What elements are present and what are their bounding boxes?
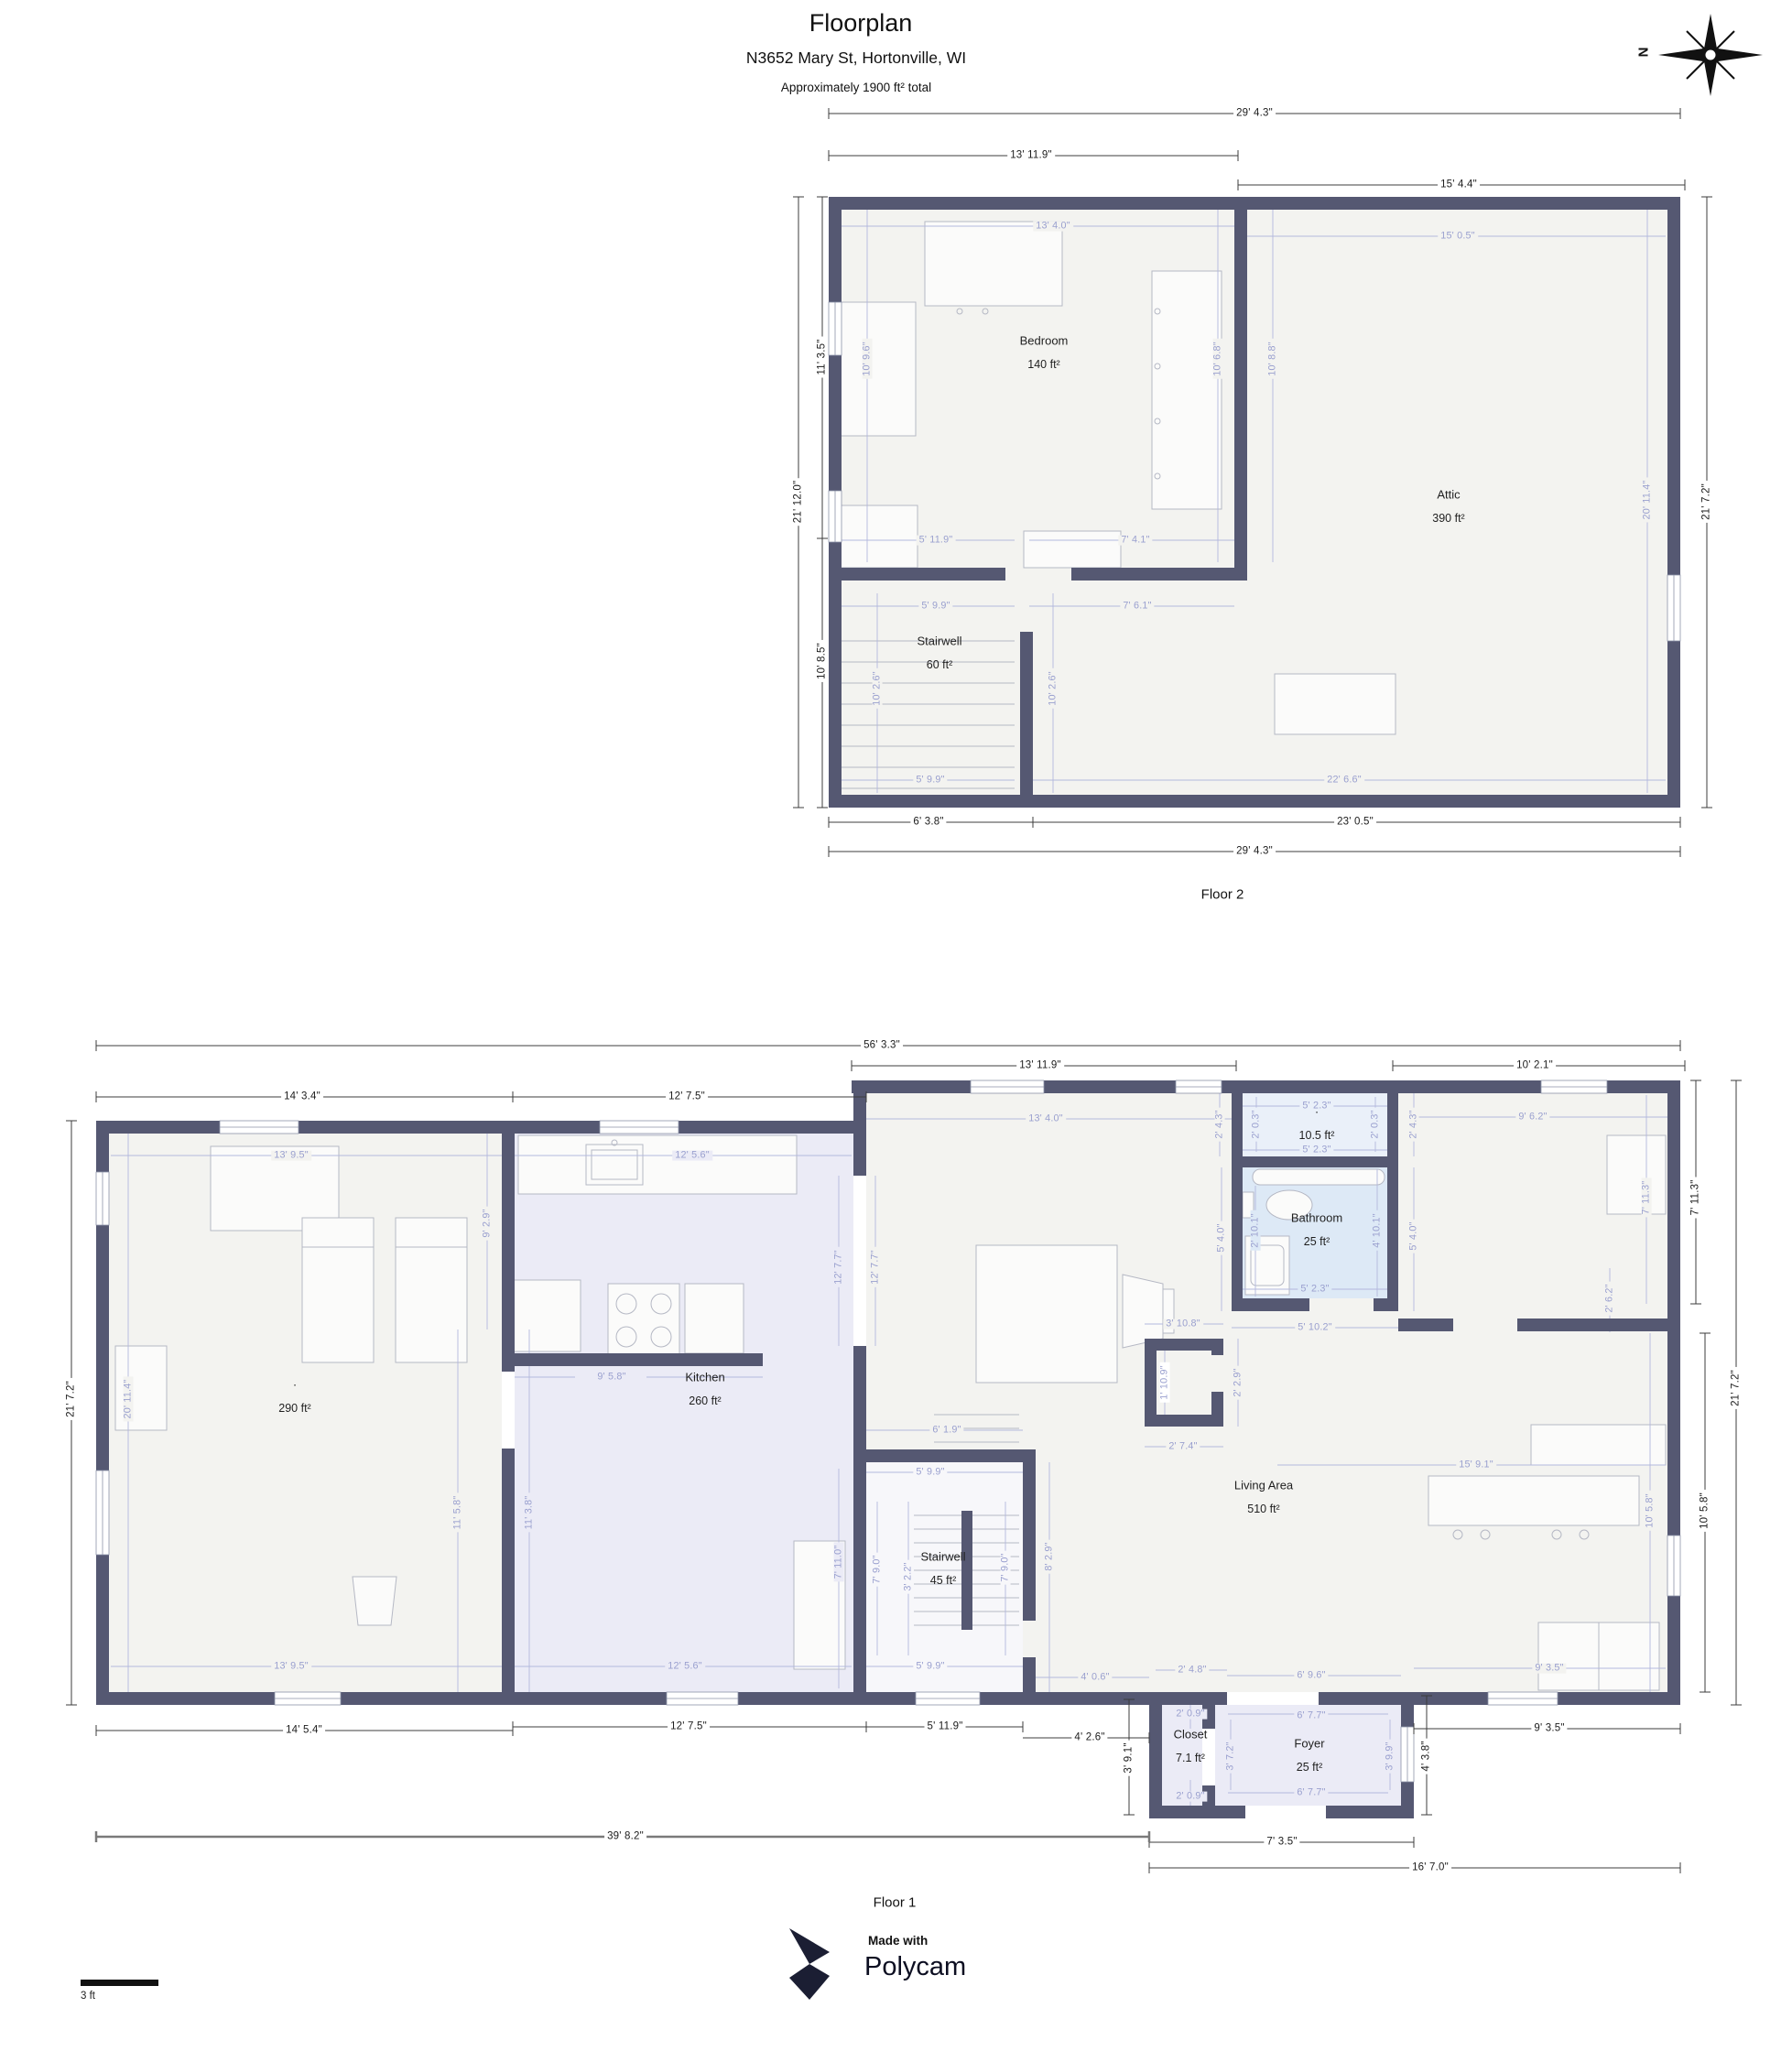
dim-label: 8' 2.9" — [1045, 1539, 1055, 1573]
dim-label: 10' 8.5" — [817, 640, 828, 682]
dim-label: 2' 4.3" — [1409, 1107, 1419, 1141]
dim-label: 13' 11.9" — [1007, 150, 1055, 161]
room-area: 390 ft² — [1429, 513, 1467, 525]
floor2-caption: Floor 2 — [1201, 887, 1244, 903]
dim-label: 16' 7.0" — [1409, 1862, 1451, 1873]
room-area: 140 ft² — [1025, 359, 1062, 371]
room-area: 7.1 ft² — [1173, 1753, 1208, 1764]
room-area: 510 ft² — [1244, 1503, 1282, 1515]
dim-label: 5' 9.9" — [918, 602, 952, 612]
dim-label: 3' 10.8" — [1163, 1319, 1203, 1329]
room-name: Closet — [1171, 1729, 1211, 1741]
dim-label: 2' 6.2" — [1605, 1281, 1615, 1315]
dim-label: 2' 2.9" — [1233, 1365, 1244, 1399]
dim-label: 5' 9.9" — [913, 776, 947, 786]
dim-label: 21' 7.2" — [1731, 1367, 1742, 1409]
room-name: Attic — [1434, 489, 1462, 501]
page-title: Floorplan — [809, 9, 913, 38]
dim-label: 2' 0.3" — [1252, 1107, 1262, 1141]
dim-label: 5' 9.9" — [913, 1468, 947, 1478]
dim-label: 3' 2.2" — [904, 1559, 914, 1593]
floorplan-page: Floorplan N3652 Mary St, Hortonville, WI… — [0, 0, 1792, 2051]
dim-label: 3' 7.2" — [1226, 1739, 1236, 1773]
dim-label: 7' 11.3" — [1690, 1177, 1701, 1219]
address-subtitle: N3652 Mary St, Hortonville, WI — [746, 49, 966, 68]
dim-label: 13' 11.9" — [1016, 1060, 1064, 1071]
dim-label: 14' 5.4" — [283, 1725, 325, 1736]
dim-label: 3' 9.9" — [1385, 1739, 1396, 1773]
room-area: 25 ft² — [1301, 1236, 1333, 1248]
scale-bar-label: 3 ft — [81, 1991, 95, 2002]
dim-label: 15' 4.4" — [1438, 179, 1480, 190]
floor1-caption: Floor 1 — [874, 1895, 917, 1911]
dim-label: 7' 11.0" — [834, 1543, 844, 1582]
dim-label: 9' 2.9" — [483, 1206, 493, 1240]
room-name: · — [290, 1379, 299, 1391]
dim-label: 4' 3.8" — [1421, 1738, 1432, 1774]
room-area: 45 ft² — [928, 1575, 960, 1587]
dim-label: 56' 3.3" — [861, 1040, 903, 1051]
dim-label: 7' 4.1" — [1118, 536, 1152, 546]
dim-label: 6' 7.7" — [1294, 1788, 1328, 1798]
dim-label: 5' 4.0" — [1409, 1219, 1419, 1253]
room-name: Stairwell — [918, 1551, 968, 1563]
dim-label: 21' 12.0" — [793, 478, 804, 526]
dim-label: 2' 0.3" — [1371, 1107, 1381, 1141]
dim-label: 39' 8.2" — [604, 1831, 646, 1842]
floorplan-graphics — [0, 0, 1792, 2051]
dim-label: 9' 5.8" — [594, 1373, 628, 1383]
dim-label: 5' 9.9" — [913, 1662, 947, 1672]
dim-label: 10' 6.8" — [1213, 339, 1223, 379]
dim-label: 10' 2.6" — [1048, 668, 1059, 709]
dim-label: 12' 7.5" — [666, 1091, 708, 1102]
dim-label: 20' 11.4" — [1643, 478, 1653, 523]
dim-label: 22' 6.6" — [1324, 776, 1364, 786]
room-area: 60 ft² — [924, 659, 956, 671]
dim-label: 9' 6.2" — [1515, 1112, 1549, 1123]
dim-label: 6' 9.6" — [1294, 1671, 1328, 1681]
dim-label: 4' 10.1" — [1373, 1210, 1383, 1251]
dim-label: 5' 11.9" — [917, 536, 956, 546]
compass-icon — [1658, 14, 1763, 96]
scale-bar — [81, 1980, 158, 1986]
dim-label: 2' 4.3" — [1215, 1107, 1225, 1141]
dim-label: 13' 4.0" — [1026, 1114, 1066, 1124]
dim-label: 12' 5.6" — [665, 1662, 705, 1672]
dim-label: 11' 3.5" — [817, 337, 828, 378]
dim-label: 13' 9.5" — [271, 1662, 311, 1672]
room-name: Bathroom — [1288, 1212, 1345, 1224]
dim-label: 7' 3.5" — [1264, 1837, 1299, 1848]
dim-label: 9' 3.5" — [1531, 1723, 1567, 1734]
dim-label: 5' 4.0" — [1217, 1221, 1227, 1254]
room-area: 290 ft² — [276, 1403, 313, 1415]
dim-label: 6' 3.8" — [910, 817, 946, 828]
dim-label: 10' 5.8" — [1645, 1491, 1656, 1531]
room-name: · — [1312, 1106, 1321, 1118]
dim-label: 2' 7.4" — [1166, 1442, 1200, 1452]
room-area: 25 ft² — [1294, 1762, 1326, 1774]
dim-label: 3' 9.1" — [1124, 1740, 1135, 1775]
polycam-wordmark: Polycam — [864, 1952, 966, 1982]
dim-label: 1' 10.9" — [1160, 1362, 1170, 1403]
dim-label: 29' 4.3" — [1233, 108, 1276, 119]
dim-label: 10' 2.1" — [1514, 1060, 1556, 1071]
dim-label: 12' 7.7" — [834, 1247, 844, 1287]
made-with-label: Made with — [868, 1934, 928, 1948]
dim-label: 15' 9.1" — [1456, 1460, 1496, 1470]
dim-label: 6' 1.9" — [929, 1426, 963, 1436]
dim-label: 7' 9.0" — [1001, 1550, 1011, 1584]
room-name: Kitchen — [682, 1372, 727, 1384]
dim-label: 4' 2.6" — [1071, 1732, 1107, 1743]
room-name: Stairwell — [914, 635, 964, 647]
dim-label: 5' 2.3" — [1299, 1145, 1333, 1156]
dim-label: 21' 7.2" — [1701, 481, 1712, 523]
dim-label: 2' 0.9" — [1173, 1709, 1207, 1720]
dim-label: 2' 4.8" — [1175, 1666, 1209, 1676]
dim-label: 5' 10.2" — [1295, 1323, 1335, 1333]
dim-label: 10' 8.8" — [1268, 339, 1278, 379]
dim-label: 7' 9.0" — [873, 1552, 883, 1586]
dim-label: 5' 11.9" — [925, 1721, 966, 1732]
dim-label: 7' 6.1" — [1120, 602, 1154, 612]
dim-label: 2' 10.1" — [1251, 1210, 1261, 1251]
room-name: Living Area — [1232, 1480, 1296, 1492]
dim-label: 13' 9.5" — [271, 1151, 311, 1161]
dim-label: 20' 11.4" — [124, 1377, 134, 1422]
dim-label: 23' 0.5" — [1334, 817, 1376, 828]
dim-label: 12' 7.7" — [871, 1247, 881, 1287]
dim-label: 5' 2.3" — [1298, 1285, 1331, 1295]
dim-label: 12' 5.6" — [672, 1151, 712, 1161]
dim-label: 21' 7.2" — [66, 1378, 77, 1420]
dim-label: 12' 7.5" — [668, 1721, 710, 1732]
dim-label: 10' 2.6" — [873, 668, 883, 709]
room-area: 10.5 ft² — [1297, 1130, 1338, 1142]
dim-label: 7' 11.3" — [1642, 1178, 1652, 1218]
room-name: Foyer — [1291, 1738, 1327, 1750]
dim-label: 6' 7.7" — [1294, 1711, 1328, 1721]
dim-label: 15' 0.5" — [1438, 232, 1478, 242]
compass-north-label: N — [1636, 48, 1652, 58]
room-name: Bedroom — [1017, 335, 1071, 347]
dim-label: 13' 4.0" — [1033, 222, 1073, 232]
dim-label: 11' 5.8" — [453, 1493, 463, 1533]
dim-label: 14' 3.4" — [281, 1091, 323, 1102]
dim-label: 11' 3.8" — [525, 1493, 535, 1533]
polycam-logo-icon — [789, 1928, 830, 2000]
dim-label: 10' 9.6" — [863, 339, 873, 379]
dim-label: 29' 4.3" — [1233, 846, 1276, 857]
dim-label: 4' 0.6" — [1078, 1673, 1112, 1683]
total-area-note: Approximately 1900 ft² total — [781, 81, 931, 94]
dim-label: 10' 5.8" — [1700, 1490, 1711, 1532]
dim-label: 9' 3.5" — [1532, 1664, 1566, 1674]
room-area: 260 ft² — [686, 1395, 723, 1407]
dim-label: 2' 0.9" — [1173, 1792, 1207, 1802]
